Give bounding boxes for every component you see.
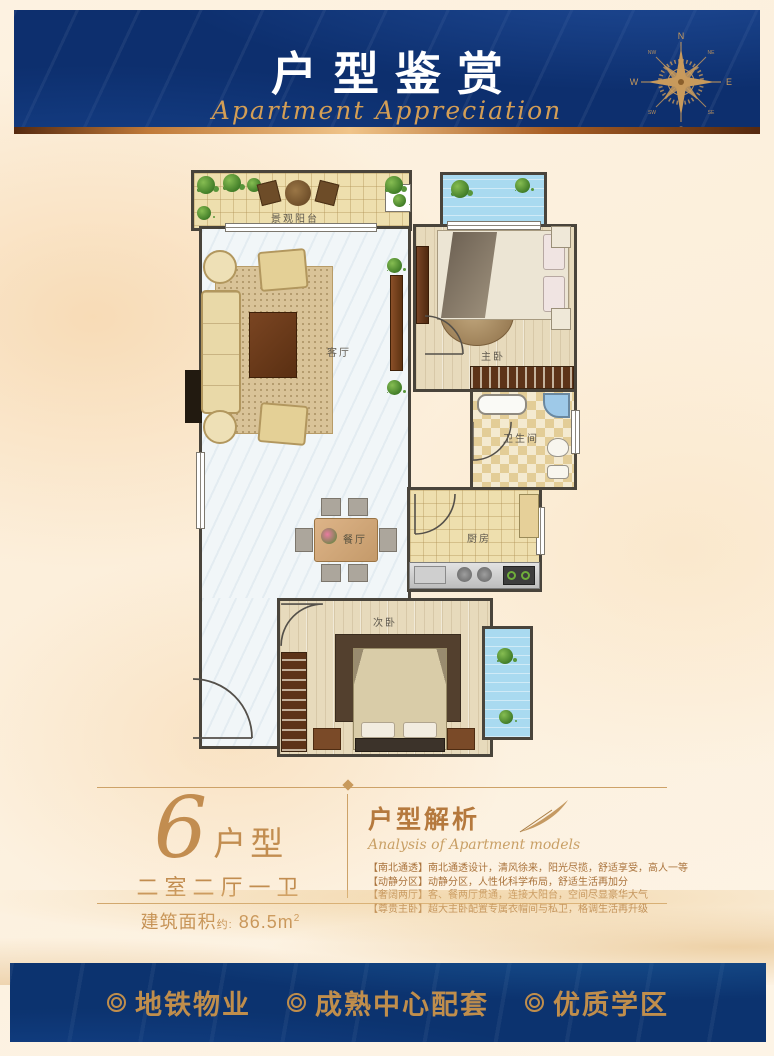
plant-icon <box>197 176 215 194</box>
bullseye-icon <box>525 993 544 1012</box>
bed-pillow <box>361 722 395 738</box>
plant-icon <box>497 648 513 664</box>
dining-chair <box>348 498 368 516</box>
master-wardrobe <box>470 366 574 389</box>
nightstand <box>551 226 571 248</box>
bronze-divider-bar <box>14 127 760 134</box>
compass-nw-label: NW <box>648 50 657 56</box>
kitchen-door <box>413 492 457 536</box>
kitchen-cabinet <box>519 494 539 538</box>
dining-chair <box>321 564 341 582</box>
dining-chair <box>321 498 341 516</box>
table-flowers <box>321 528 337 544</box>
dining-chair <box>348 564 368 582</box>
bathroom-window <box>571 410 580 454</box>
flower-ornament-icon <box>342 779 353 790</box>
bed-pillow <box>403 722 437 738</box>
footer-item-label: 成熟中心配套 <box>315 983 489 1022</box>
unit-number: 6 <box>154 792 207 864</box>
plant-icon <box>393 194 406 207</box>
balcony-label: 景观阳台 <box>271 210 319 225</box>
second-wardrobe <box>281 652 307 752</box>
analysis-subtitle: Analysis of Apartment models <box>368 837 668 853</box>
master-label: 主卧 <box>481 348 505 363</box>
footer-item-school: 优质学区 <box>525 983 669 1022</box>
bed-pillow <box>543 276 565 312</box>
floor-plan: 景观阳台 客厅 主卧 卫生间 <box>185 162 597 774</box>
toilet <box>547 438 569 457</box>
header-banner: 户型鉴赏 Apartment Appreciation N E S W <box>14 10 760 127</box>
second-bedroom-door <box>279 602 325 648</box>
analysis-title: 户型解析 <box>368 800 480 836</box>
plant-icon <box>515 178 530 193</box>
footer-banner: 地铁物业 成熟中心配套 优质学区 <box>10 963 766 1042</box>
compass-sw-label: SW <box>648 110 656 116</box>
entrance-door <box>191 677 255 741</box>
dining-label: 餐厅 <box>343 531 367 546</box>
sofa <box>201 290 241 414</box>
analysis-bullet: 【南北通透】南北通透设计，清风徐来，阳光尽揽，舒适享受，高人一等 <box>368 862 668 876</box>
analysis-bullet: 【动静分区】动静分区，人性化科学布局，舒适生活再加分 <box>368 876 668 890</box>
bullseye-icon <box>107 993 126 1012</box>
plant-icon <box>451 180 469 198</box>
bathtub <box>477 394 527 415</box>
footer-item-label: 优质学区 <box>553 983 669 1022</box>
unit-number-row: 6 户型 <box>118 792 323 864</box>
unit-suffix: 户型 <box>213 824 287 864</box>
master-door <box>423 312 467 356</box>
compass-icon: N E S W NW NE SW SE <box>626 28 736 136</box>
living-label: 客厅 <box>327 344 351 359</box>
nightstand <box>551 308 571 330</box>
compass-w-label: W <box>630 77 639 87</box>
info-divider <box>347 794 348 898</box>
bathroom-door <box>471 420 513 462</box>
dining-chair <box>379 528 397 552</box>
master-balcony-window <box>447 221 541 230</box>
compass-se-label: SE <box>708 110 715 116</box>
hob-ring <box>521 571 530 580</box>
bath-sink <box>547 465 569 479</box>
living-west-window <box>196 452 205 529</box>
nightstand <box>313 728 341 750</box>
stove-burner <box>477 567 492 582</box>
nightstand <box>447 728 475 750</box>
compass-n-label: N <box>678 31 685 41</box>
tv-console <box>390 275 403 371</box>
side-table <box>203 410 237 444</box>
bullseye-icon <box>287 993 306 1012</box>
footer-item-label: 地铁物业 <box>135 983 251 1022</box>
plant-icon <box>499 710 513 724</box>
hob-ring <box>507 571 516 580</box>
footer-item-center: 成熟中心配套 <box>287 983 489 1022</box>
shaft-block <box>185 370 202 423</box>
feather-icon <box>518 798 570 834</box>
coffee-table <box>249 312 297 378</box>
armchair <box>257 402 308 446</box>
balcony-table <box>285 180 311 206</box>
kitchen-sink <box>414 566 446 584</box>
second-label: 次卧 <box>373 614 397 629</box>
plant-icon <box>223 174 241 192</box>
dining-chair <box>295 528 313 552</box>
poster-page: 户型鉴赏 Apartment Appreciation N E S W <box>0 0 774 1056</box>
footer-item-metro: 地铁物业 <box>107 983 251 1022</box>
second-headboard <box>355 738 445 752</box>
kitchen-label: 厨房 <box>467 530 491 545</box>
armchair <box>257 248 308 292</box>
compass-e-label: E <box>726 77 732 87</box>
plant-icon <box>385 176 403 194</box>
plant-icon <box>387 258 402 273</box>
plant-icon <box>387 380 402 395</box>
side-table <box>203 250 237 284</box>
plant-icon <box>197 206 211 220</box>
compass-ne-label: NE <box>708 50 716 56</box>
stove-burner <box>457 567 472 582</box>
